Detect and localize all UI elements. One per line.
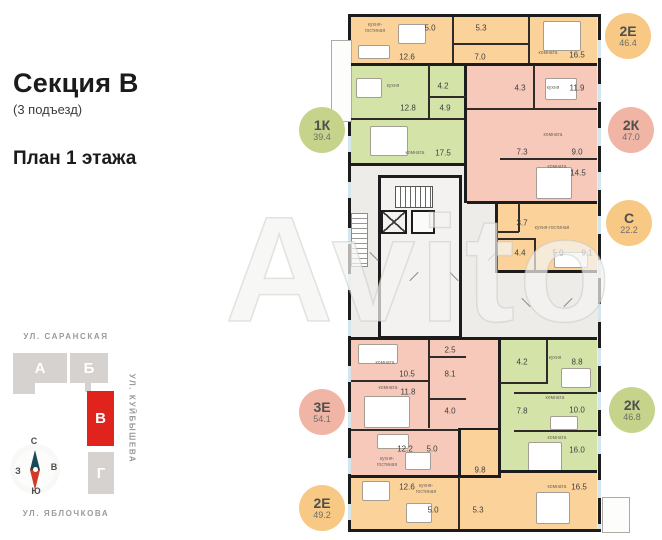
room-name-label: кухня- гостиная xyxy=(365,22,385,34)
room-name-label: комната xyxy=(406,150,425,156)
room-area-label: 4.2 xyxy=(437,82,448,91)
apartment-area-label: 49.2 xyxy=(313,510,331,520)
room-partition-wall xyxy=(428,340,430,428)
room-area-label: 17.5 xyxy=(435,149,451,158)
apartment-badge-2К-46.8: 2К46.8 xyxy=(609,387,655,433)
apartment-area-label: 39.4 xyxy=(313,132,331,142)
room-name-label: комната xyxy=(548,164,567,170)
entrance-subtitle: (3 подъезд) xyxy=(13,102,82,117)
furniture-item xyxy=(550,416,578,430)
room-area-label: 12.2 xyxy=(397,445,413,454)
apartment-badge-2К-47.0: 2К47.0 xyxy=(608,107,654,153)
room-partition-wall xyxy=(518,203,520,232)
apartment-badge-2Е-49.2: 2Е49.2 xyxy=(299,485,345,531)
room-area-label: 5.0 xyxy=(427,506,438,515)
site-building-part-1 xyxy=(13,383,35,394)
room-area-label: 5.0 xyxy=(426,445,437,454)
apartment-area-label: 54.1 xyxy=(313,414,331,424)
room-name-label: комната xyxy=(544,132,563,138)
stairs-icon xyxy=(395,186,433,208)
room-area-label: 10.0 xyxy=(569,406,585,415)
room-partition-wall xyxy=(514,430,597,432)
furniture-item xyxy=(561,368,591,388)
street-label-kuibysheva: УЛ. КУЙБЫШЕВА xyxy=(128,363,137,475)
outer-wall-bottom xyxy=(348,529,601,532)
furniture-item xyxy=(536,492,570,524)
furniture-item xyxy=(358,45,390,59)
room-partition-wall xyxy=(500,382,548,384)
room-name-label: комната xyxy=(376,360,395,366)
room-area-label: 4.2 xyxy=(516,358,527,367)
room-area-label: 7.3 xyxy=(516,148,527,157)
apartment-badge-С-22.2: С22.2 xyxy=(606,200,652,246)
room-area-label: 2.5 xyxy=(444,346,455,355)
site-building-В: В xyxy=(87,391,114,446)
interior-wall xyxy=(498,340,501,477)
room-name-label: кухня xyxy=(549,355,562,361)
apartment-area-label: 46.4 xyxy=(619,38,637,48)
room-area-label: 4.9 xyxy=(439,104,450,113)
interior-wall xyxy=(351,337,597,340)
room-partition-wall xyxy=(458,477,460,529)
room-area-label: 14.5 xyxy=(570,169,586,178)
furniture-item xyxy=(528,442,562,472)
apartment-type-label: 2Е xyxy=(313,496,330,511)
room-partition-wall xyxy=(452,17,454,63)
room-partition-wall xyxy=(497,231,519,233)
furniture-item xyxy=(364,396,410,428)
compass-west-label: З xyxy=(12,466,24,476)
floor-plan: кухня- гостиная5.012.65.37.0комната16.5к… xyxy=(348,14,601,532)
room-partition-wall xyxy=(351,429,459,431)
room-partition-wall xyxy=(514,392,597,394)
interior-wall xyxy=(351,163,467,166)
apartment-area-label: 46.8 xyxy=(623,412,641,422)
interior-wall xyxy=(500,470,597,473)
balcony xyxy=(602,497,630,533)
floorplan-listing-image: { "header": { "title": "Секция В", "subt… xyxy=(0,0,662,540)
interior-wall xyxy=(464,63,467,203)
compass-needle-center-dot xyxy=(33,467,38,472)
room-area-label: 7.8 xyxy=(516,407,527,416)
site-building-Б: Б xyxy=(70,353,108,383)
room-partition-wall xyxy=(351,380,429,382)
interior-wall xyxy=(495,270,597,273)
room-name-label: кухня xyxy=(547,85,560,91)
room-area-label: 3.7 xyxy=(516,219,527,228)
room-partition-wall xyxy=(533,65,535,108)
interior-wall xyxy=(458,428,500,430)
interior-wall xyxy=(351,475,501,478)
furniture-item xyxy=(536,167,572,199)
street-label-yablochkova: УЛ. ЯБЛОЧКОВА xyxy=(10,509,122,518)
room-partition-wall xyxy=(351,118,464,120)
room-area-label: 12.8 xyxy=(400,104,416,113)
section-title: Секция В xyxy=(13,68,139,99)
furniture-item xyxy=(398,24,426,44)
room-area-label: 8.8 xyxy=(571,358,582,367)
apartment-type-label: 2Е xyxy=(619,24,636,39)
room-area-label: 4.0 xyxy=(444,407,455,416)
room-area-label: 11.9 xyxy=(570,84,585,93)
apartment-area-label: 47.0 xyxy=(622,132,640,142)
room-name-label: комната xyxy=(546,395,565,401)
furniture-item xyxy=(405,452,431,470)
room-partition-wall xyxy=(452,43,530,45)
room-name-label: кухня- гостиная xyxy=(377,456,397,468)
door-swing-mark xyxy=(563,298,572,307)
room-area-label: 8.1 xyxy=(444,370,455,379)
room-area-label: 10.5 xyxy=(399,370,415,379)
room-partition-wall xyxy=(500,158,597,160)
room-name-label: комната xyxy=(548,484,567,490)
furniture-item xyxy=(362,481,390,501)
room-area-label: 11.8 xyxy=(401,388,416,397)
room-name-label: кухня- гостиная xyxy=(416,483,436,495)
street-label-saranskaya: УЛ. САРАНСКАЯ xyxy=(10,332,122,341)
floor-plan-label: План 1 этажа xyxy=(13,148,136,170)
room-area-label: 5.3 xyxy=(472,506,483,515)
room-partition-wall xyxy=(528,17,530,63)
room-partition-wall xyxy=(497,238,535,240)
room-area-label: 7.0 xyxy=(474,53,485,62)
room-area-label: 16.0 xyxy=(569,446,585,455)
interior-wall xyxy=(467,201,597,204)
interior-wall xyxy=(458,428,461,477)
room-partition-wall xyxy=(534,238,536,270)
room-area-label: 5.0 xyxy=(424,24,435,33)
compass-north-label: С xyxy=(28,436,40,446)
room-area-label: 9.0 xyxy=(571,148,582,157)
room-partition-wall xyxy=(467,108,597,110)
room-name-label: комната xyxy=(548,435,567,441)
interior-wall xyxy=(351,63,597,66)
site-building-Г: Г xyxy=(88,452,114,494)
apartment-badge-1К-39.4: 1К39.4 xyxy=(299,107,345,153)
room-partition-wall xyxy=(428,398,466,400)
apartment-area-label: 22.2 xyxy=(620,225,638,235)
apartment-type-label: 2К xyxy=(623,118,639,133)
room-area-label: 4.3 xyxy=(514,84,525,93)
room-area-label: 5.3 xyxy=(475,24,486,33)
compass-needle-south xyxy=(30,470,40,490)
outer-wall-right-windows xyxy=(598,14,601,532)
site-building-А: А xyxy=(13,353,67,383)
room-area-label: 9.1 xyxy=(581,249,592,258)
furniture-item xyxy=(543,21,581,51)
room-name-label: комната xyxy=(379,385,398,391)
apartment-type-label: 1К xyxy=(314,118,330,133)
room-area-label: 4.4 xyxy=(514,249,525,258)
compass-east-label: В xyxy=(48,462,60,472)
room-partition-wall xyxy=(428,96,466,98)
room-partition-wall xyxy=(428,65,430,118)
room-area-label: 9.8 xyxy=(474,466,485,475)
room-area-label: 12.6 xyxy=(399,53,415,62)
apartment-badge-2Е-46.4: 2Е46.4 xyxy=(605,13,651,59)
elevator-shaft-2 xyxy=(411,210,435,234)
room-name-label: комната xyxy=(539,50,558,56)
furniture-item xyxy=(356,78,382,98)
room-name-label: кухня-гостиная xyxy=(535,225,570,231)
apartment-type-label: 2К xyxy=(624,398,640,413)
entrance-stairs-icon xyxy=(351,213,368,267)
apartment-type-label: С xyxy=(624,211,634,226)
room-partition-wall xyxy=(546,340,548,382)
room-area-label: 16.5 xyxy=(571,483,587,492)
elevator-shaft-icon xyxy=(381,210,407,234)
room-name-label: кухня xyxy=(387,83,400,89)
furniture-item xyxy=(370,126,408,156)
room-area-label: 16.5 xyxy=(569,51,585,60)
room-partition-wall xyxy=(428,356,466,358)
apartment-type-label: 3Е xyxy=(313,400,330,415)
room-area-label: 12.6 xyxy=(399,483,415,492)
door-swing-mark xyxy=(521,298,530,307)
apartment-badge-3Е-54.1: 3Е54.1 xyxy=(299,389,345,435)
room-area-label: 5.0 xyxy=(552,249,563,258)
